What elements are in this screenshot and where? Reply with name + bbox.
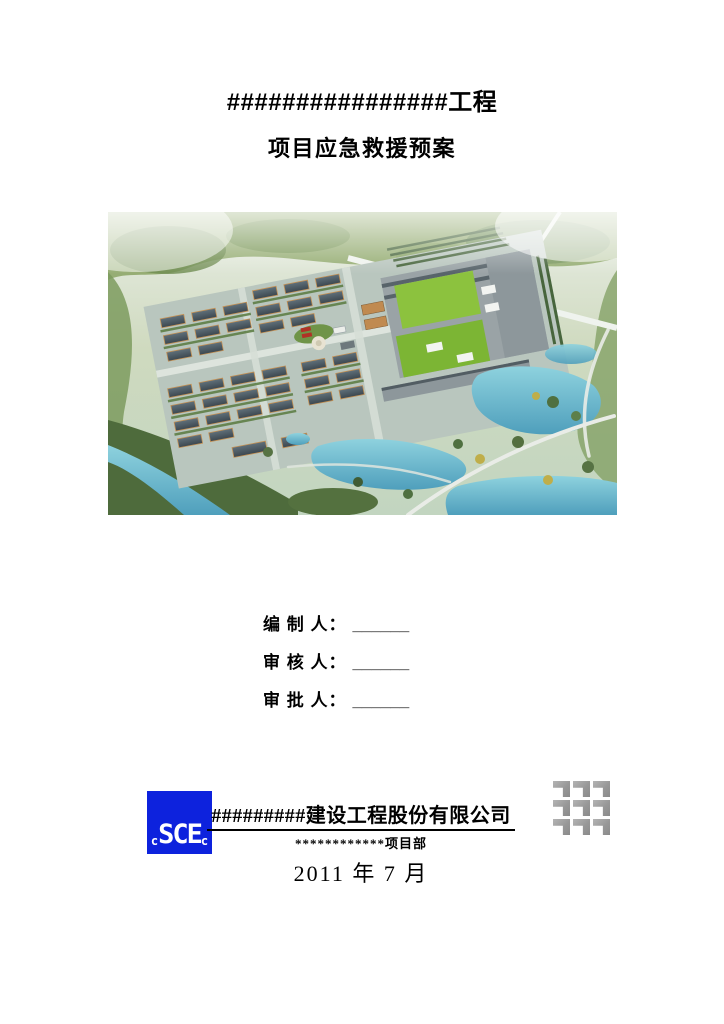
publish-date: 2011 年 7 月 — [205, 856, 517, 888]
project-department: ************项目部 — [205, 833, 517, 852]
document-title: ################工程 — [0, 82, 724, 117]
cscec-logo: cSCEc — [147, 791, 212, 854]
signature-row-approver: 审 批 人：______ — [263, 686, 409, 710]
company-name: #########建设工程股份有限公司 — [207, 799, 515, 831]
signature-row-reviewer: 审 核 人：______ — [263, 648, 409, 672]
document-page: ################工程 项目应急救援预案 — [0, 0, 724, 1024]
signature-block: 编 制 人：______ 审 核 人：______ 审 批 人：______ — [263, 610, 409, 724]
document-subtitle: 项目应急救援预案 — [0, 131, 724, 163]
grid-corner-shape — [553, 800, 570, 816]
logo-letter-s: S — [158, 823, 172, 847]
grid-decoration — [553, 781, 610, 835]
logo-letter-c: C — [172, 823, 186, 847]
grid-corner-shape — [573, 819, 590, 835]
grid-corner-shape — [593, 819, 610, 835]
compiler-label: 编 制 人： — [263, 615, 346, 634]
approver-blank-line: ______ — [352, 691, 409, 710]
logo-letter-small-left: c — [151, 836, 158, 847]
approver-label: 审 批 人： — [263, 691, 346, 710]
grid-corner-shape — [593, 800, 610, 816]
publisher-block: #########建设工程股份有限公司 ************项目部 2011… — [205, 799, 517, 888]
grid-corner-shape — [553, 819, 570, 835]
aerial-rendering-svg — [108, 212, 617, 515]
grid-corner-shape — [573, 800, 590, 816]
grid-corner-shape — [593, 781, 610, 797]
reviewer-label: 审 核 人： — [263, 653, 346, 672]
site-aerial-image — [108, 212, 617, 515]
grid-corner-shape — [553, 781, 570, 797]
reviewer-blank-line: ______ — [352, 653, 409, 672]
grid-corner-shape — [573, 781, 590, 797]
signature-row-compiler: 编 制 人：______ — [263, 610, 409, 634]
logo-letter-e: E — [187, 823, 201, 847]
compiler-blank-line: ______ — [352, 615, 409, 634]
